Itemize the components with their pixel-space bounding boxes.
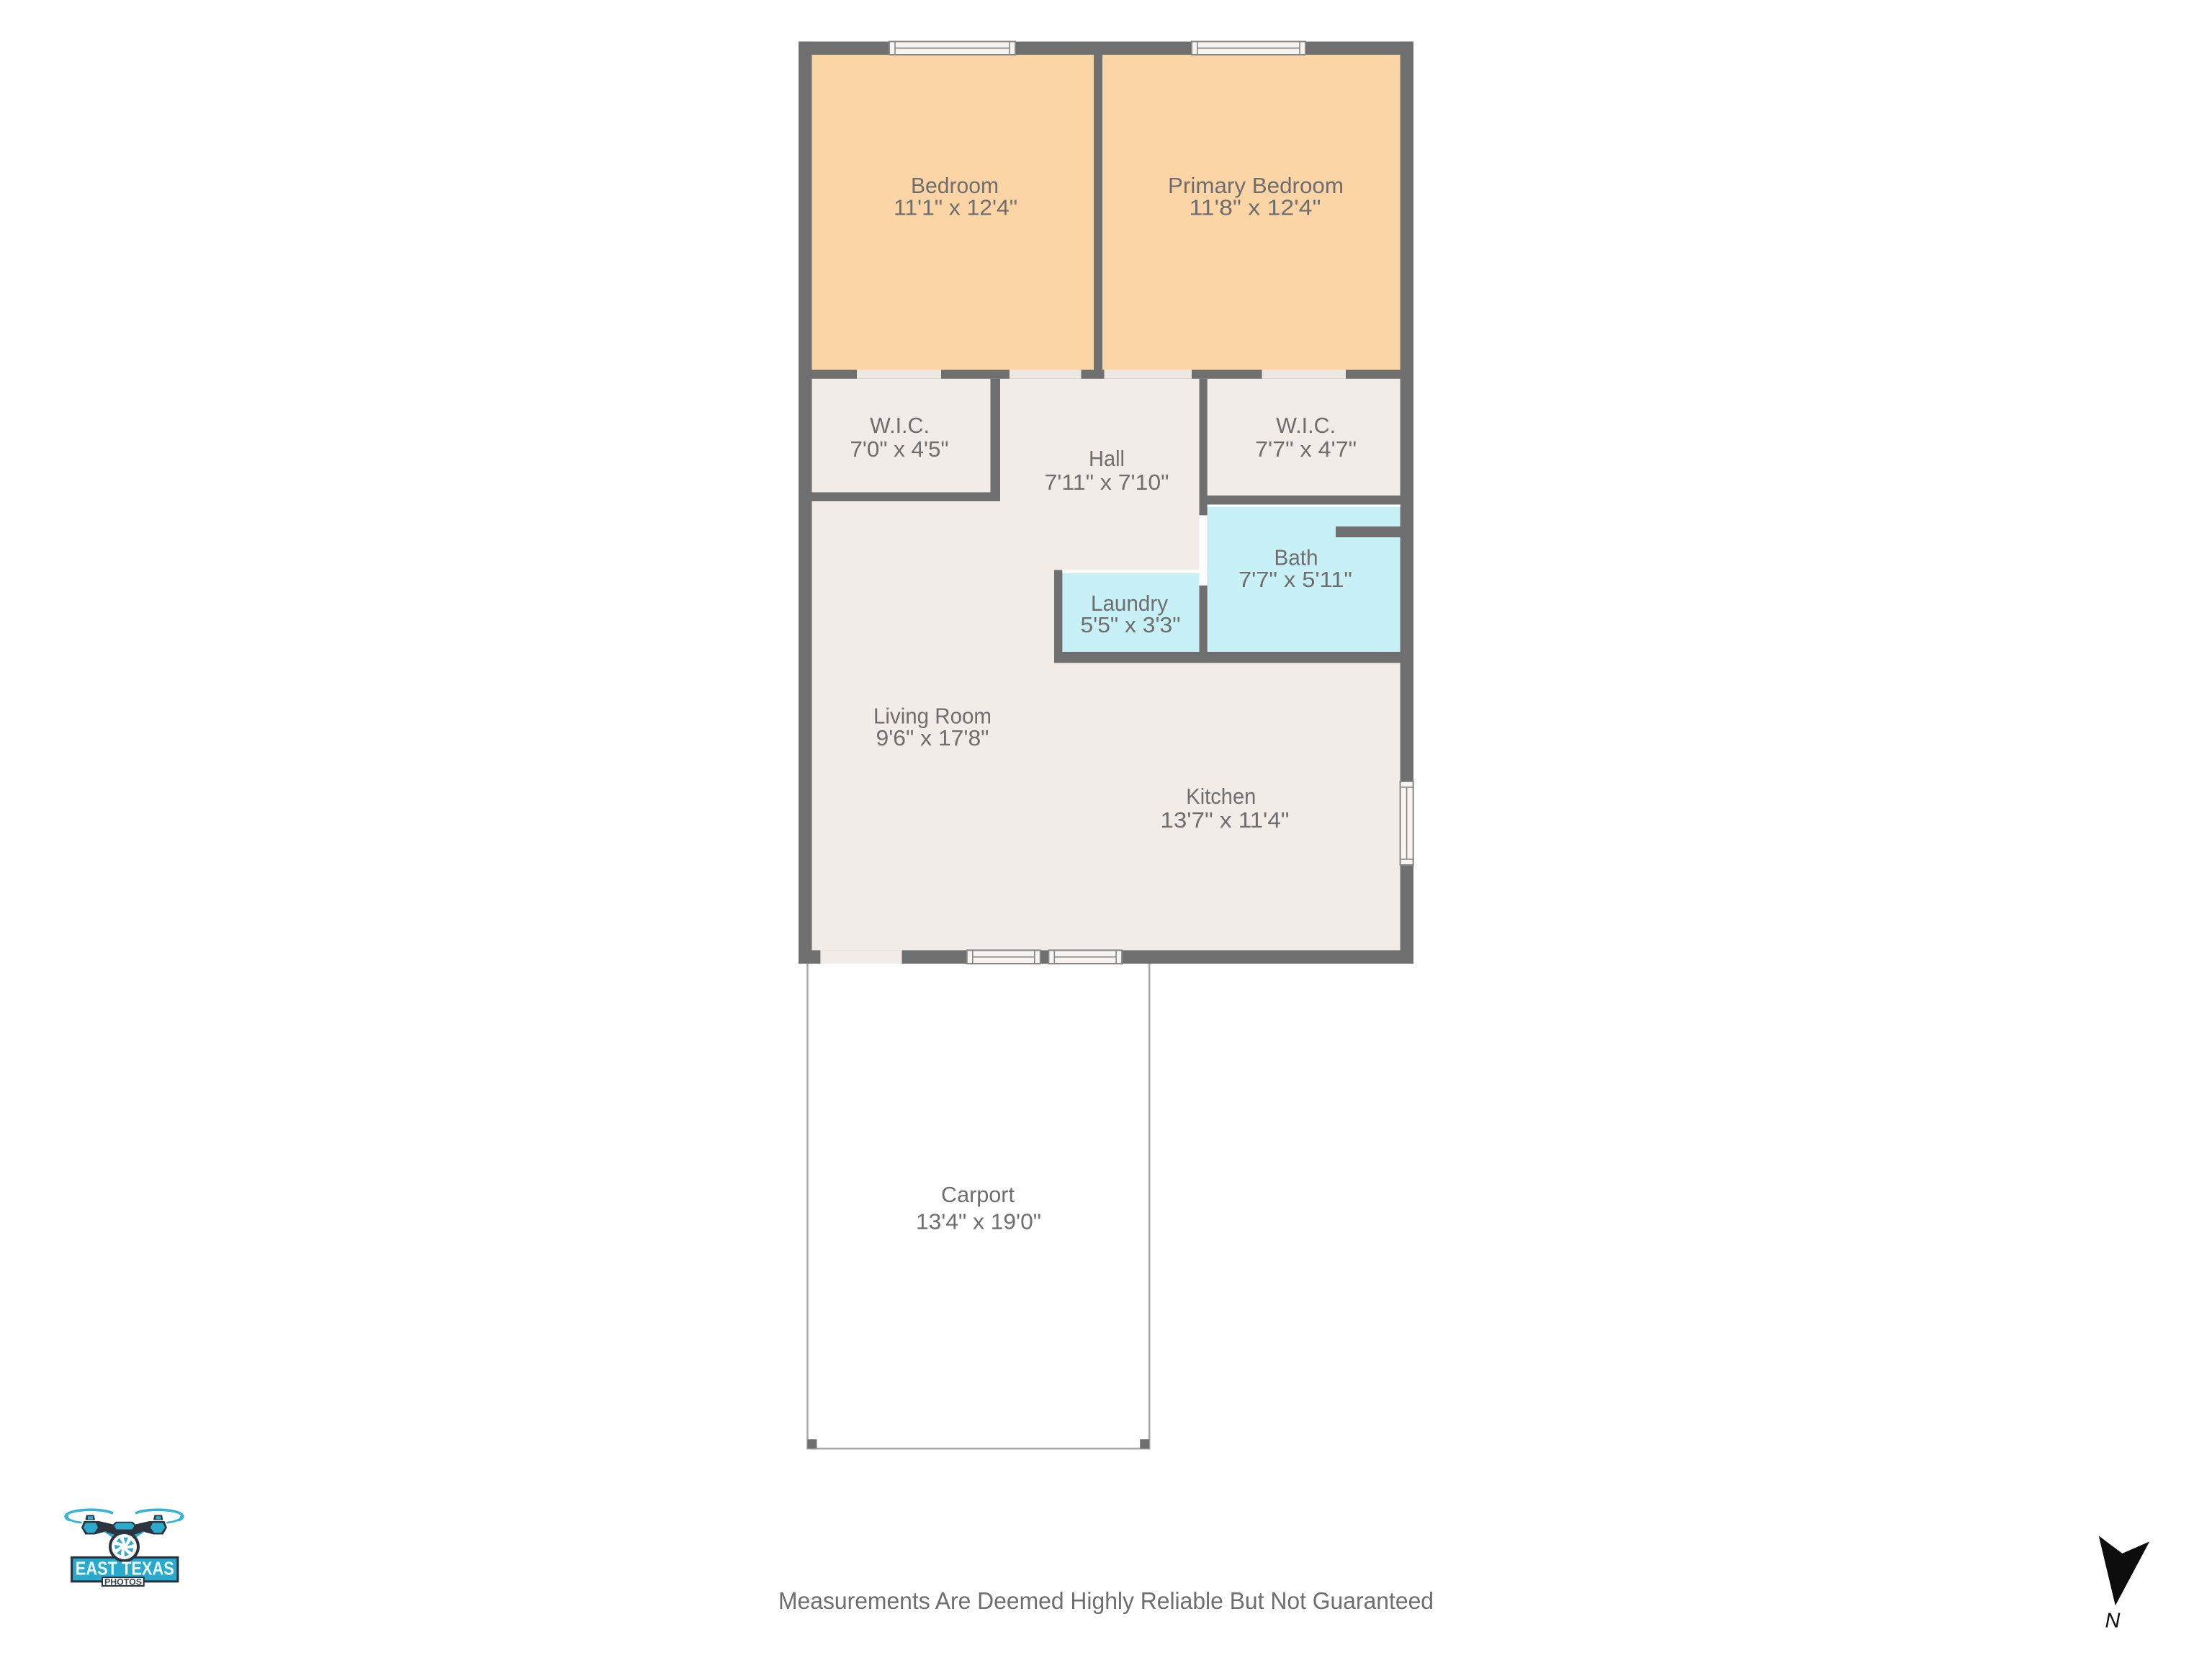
svg-text:13'4" x 19'0": 13'4" x 19'0" xyxy=(916,1209,1041,1234)
svg-text:7'7" x 5'11": 7'7" x 5'11" xyxy=(1238,567,1352,592)
svg-text:PHOTOS: PHOTOS xyxy=(104,1579,142,1587)
svg-text:Carport: Carport xyxy=(941,1182,1015,1207)
svg-text:7'7" x 4'7": 7'7" x 4'7" xyxy=(1255,436,1357,462)
svg-text:9'6" x 17'8": 9'6" x 17'8" xyxy=(876,725,989,750)
svg-text:13'7" x 11'4": 13'7" x 11'4" xyxy=(1161,807,1290,833)
svg-text:5'5" x 3'3": 5'5" x 3'3" xyxy=(1081,612,1181,637)
svg-text:7'0" x 4'5": 7'0" x 4'5" xyxy=(850,436,949,462)
svg-text:N: N xyxy=(2105,1610,2121,1633)
svg-text:Measurements Are Deemed Highly: Measurements Are Deemed Highly Reliable … xyxy=(778,1587,1434,1614)
svg-text:7'11" x 7'10": 7'11" x 7'10" xyxy=(1045,470,1169,495)
svg-text:W.I.C.: W.I.C. xyxy=(1276,413,1336,438)
svg-text:Hall: Hall xyxy=(1089,446,1125,471)
svg-text:EAST TEXAS: EAST TEXAS xyxy=(76,1558,174,1579)
svg-text:11'8" x 12'4": 11'8" x 12'4" xyxy=(1190,195,1321,220)
svg-text:Kitchen: Kitchen xyxy=(1186,784,1256,809)
svg-text:W.I.C.: W.I.C. xyxy=(870,413,930,438)
svg-text:11'1" x 12'4": 11'1" x 12'4" xyxy=(894,195,1017,220)
